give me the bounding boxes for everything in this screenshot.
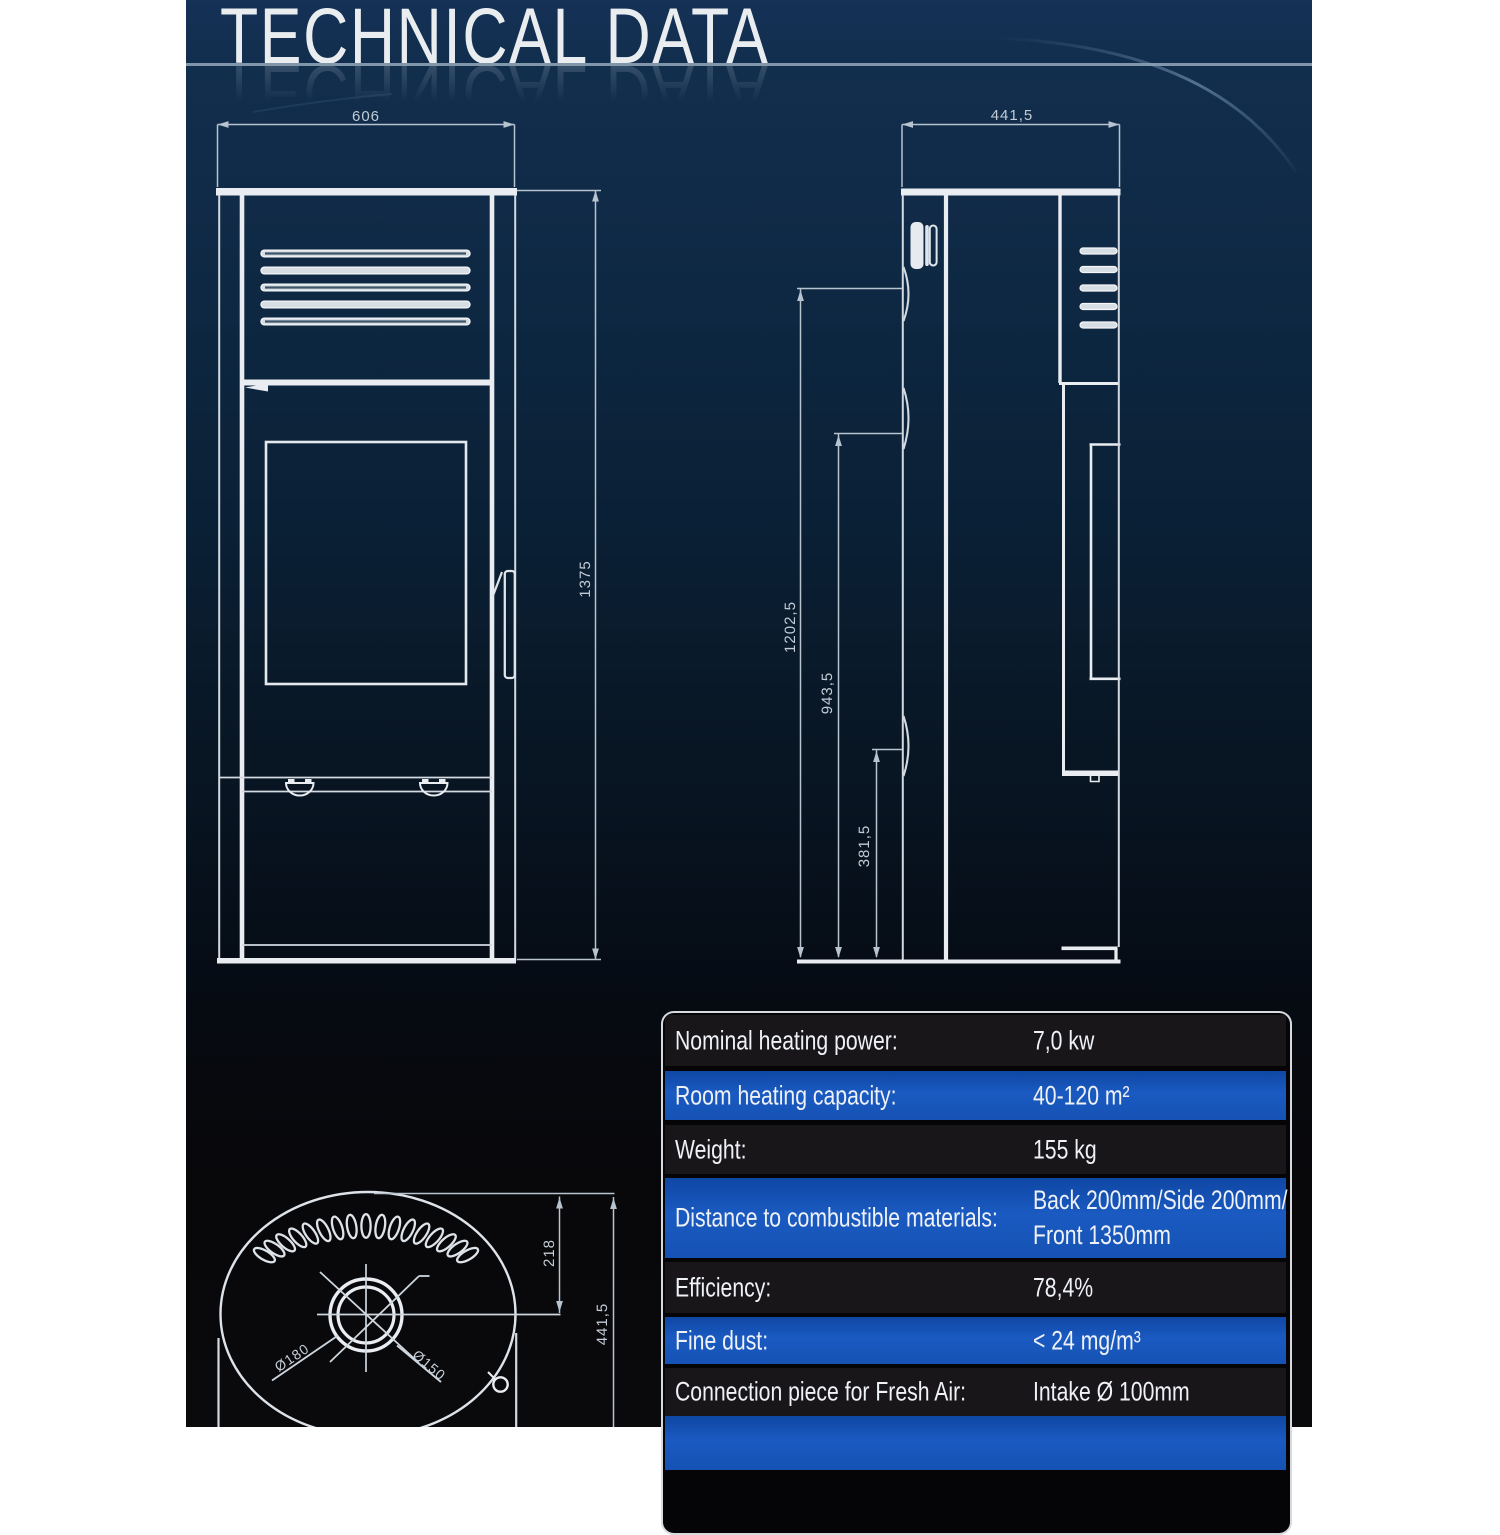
svg-text:606: 606: [352, 108, 380, 125]
svg-text:381,5: 381,5: [856, 825, 873, 868]
svg-text:Ø150: Ø150: [410, 1347, 450, 1384]
svg-text:1202,5: 1202,5: [782, 601, 799, 653]
svg-text:1375: 1375: [577, 560, 594, 597]
svg-text:441,5: 441,5: [594, 1303, 611, 1346]
svg-text:218: 218: [541, 1239, 558, 1267]
svg-text:441,5: 441,5: [991, 107, 1034, 124]
svg-text:943,5: 943,5: [819, 672, 836, 715]
svg-text:Ø180: Ø180: [271, 1340, 312, 1375]
